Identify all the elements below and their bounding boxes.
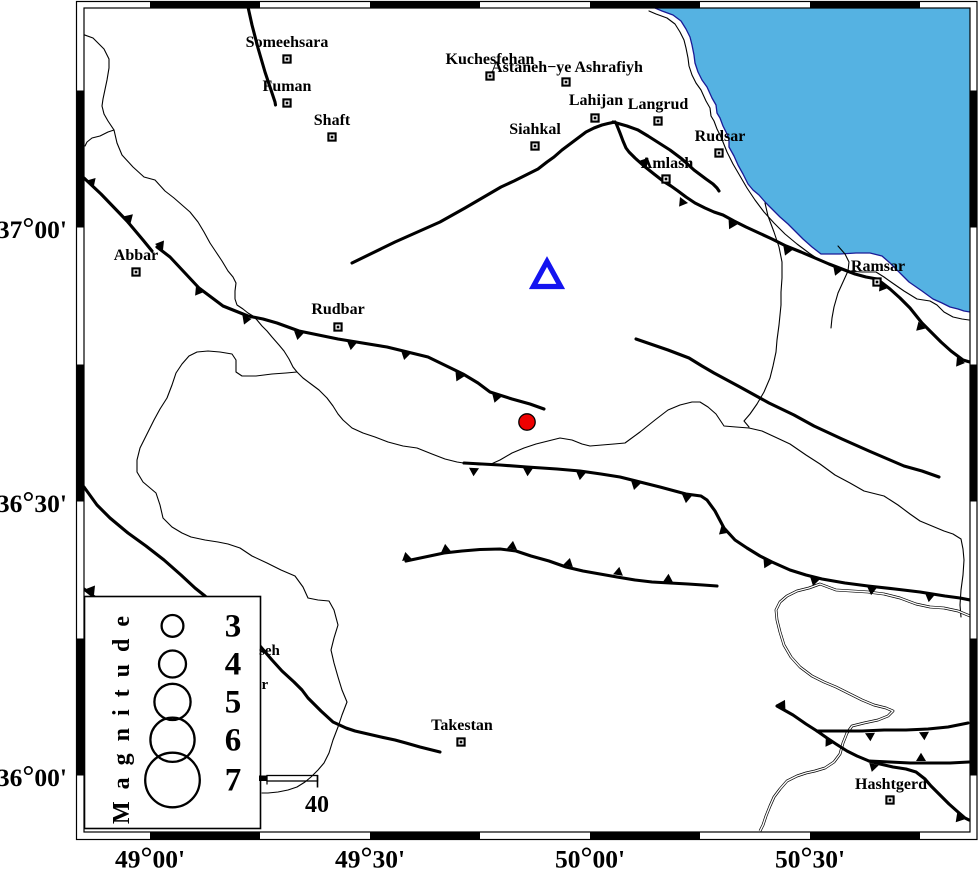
svg-text:Abbar: Abbar	[114, 247, 158, 264]
svg-text:Hashtgerd: Hashtgerd	[855, 776, 927, 793]
svg-text:Langrud: Langrud	[628, 96, 689, 113]
svg-text:Amlash: Amlash	[641, 155, 694, 172]
svg-text:Siahkal: Siahkal	[509, 121, 561, 138]
svg-text:3: 3	[225, 609, 242, 645]
svg-text:Magnitude: Magnitude	[109, 604, 135, 824]
svg-text:Rudsar: Rudsar	[695, 128, 746, 145]
svg-text:Takestan: Takestan	[431, 717, 493, 734]
svg-text:Fuman: Fuman	[263, 78, 312, 95]
svg-text:37°00': 37°00'	[0, 212, 67, 245]
svg-text:50°00': 50°00'	[555, 842, 625, 871]
svg-text:Shaft: Shaft	[314, 112, 351, 129]
svg-text:6: 6	[225, 723, 242, 759]
svg-text:40: 40	[305, 792, 329, 818]
svg-text:49°00': 49°00'	[115, 842, 185, 871]
svg-text:Ramsar: Ramsar	[851, 258, 905, 275]
svg-text:Astaneh−ye Ashrafiyh: Astaneh−ye Ashrafiyh	[491, 59, 643, 76]
svg-text:36°00': 36°00'	[0, 760, 67, 793]
svg-text:49°30': 49°30'	[335, 842, 405, 871]
svg-text:50°30': 50°30'	[775, 842, 845, 871]
svg-text:r: r	[262, 677, 269, 693]
svg-text:5: 5	[225, 685, 242, 721]
svg-text:36°30': 36°30'	[0, 486, 67, 519]
svg-text:Rudbar: Rudbar	[311, 301, 364, 318]
svg-text:Someehsara: Someehsara	[246, 34, 329, 51]
svg-text:Lahijan: Lahijan	[569, 92, 623, 109]
svg-text:4: 4	[225, 647, 242, 683]
svg-text:7: 7	[225, 763, 242, 799]
svg-text:seh: seh	[259, 643, 280, 659]
